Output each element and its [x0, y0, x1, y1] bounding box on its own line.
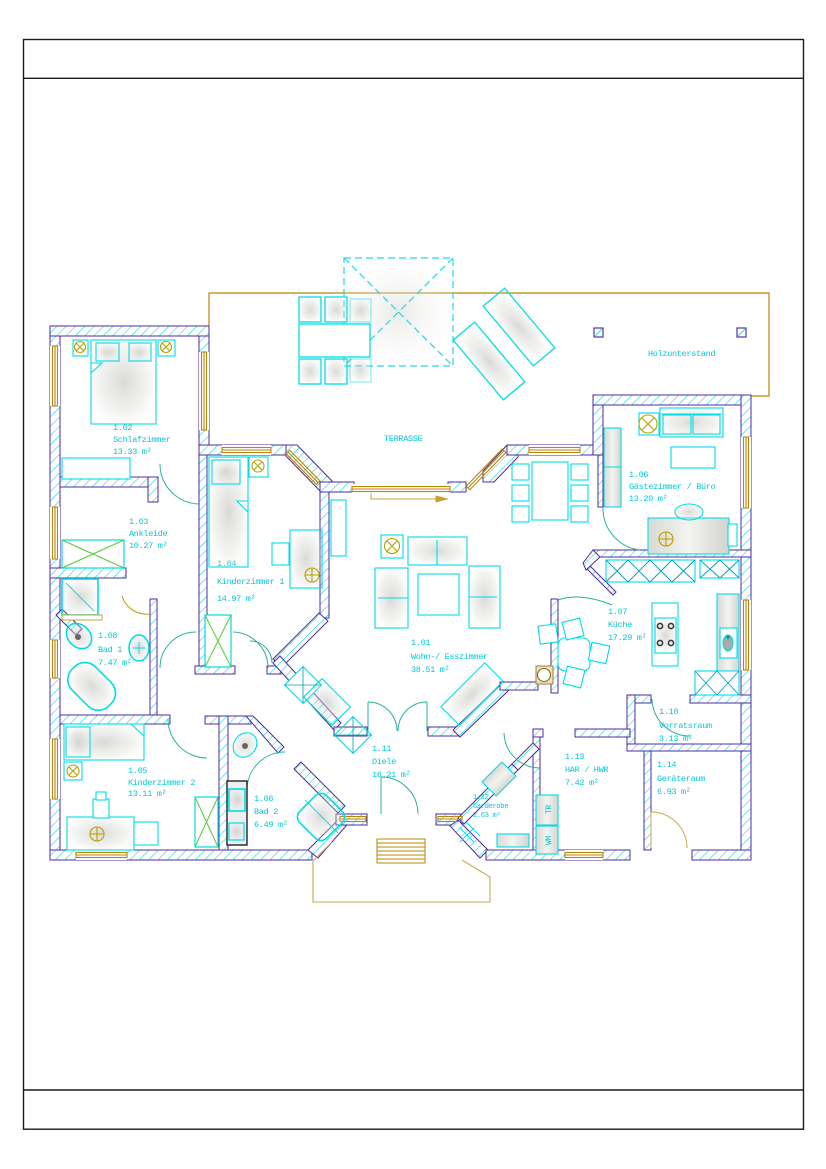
svg-text:Küche: Küche [608, 620, 632, 630]
svg-text:WM: WM [545, 835, 554, 845]
svg-text:7.42 m²: 7.42 m² [565, 778, 599, 788]
svg-text:Garderobe: Garderobe [473, 803, 508, 811]
svg-text:1.14: 1.14 [657, 760, 676, 770]
svg-text:Gästezimmer / Büro: Gästezimmer / Büro [629, 482, 716, 492]
svg-text:Bad 1: Bad 1 [98, 645, 122, 655]
svg-text:Kinderzimmer 2: Kinderzimmer 2 [128, 778, 195, 788]
svg-text:6.49 m²: 6.49 m² [254, 820, 288, 830]
svg-text:2.63 m²: 2.63 m² [473, 812, 500, 820]
svg-text:Holzunterstand: Holzunterstand [648, 349, 715, 359]
svg-text:TERRASSE: TERRASSE [384, 434, 423, 444]
svg-text:3.13 m²: 3.13 m² [659, 734, 693, 744]
svg-text:Vorratsraum: Vorratsraum [659, 721, 712, 731]
svg-text:Schlafzimmer: Schlafzimmer [113, 435, 171, 445]
svg-text:1.11: 1.11 [372, 744, 391, 754]
svg-text:10.27 m²: 10.27 m² [129, 541, 167, 551]
svg-text:TR: TR [545, 804, 554, 814]
svg-text:Geräteraum: Geräteraum [657, 774, 705, 784]
svg-text:1.08: 1.08 [98, 631, 117, 641]
svg-text:HAR / HWR: HAR / HWR [565, 765, 608, 775]
svg-text:1.12: 1.12 [473, 794, 489, 802]
svg-text:13.33 m²: 13.33 m² [113, 447, 151, 457]
svg-text:6.93 m²: 6.93 m² [657, 787, 691, 797]
svg-text:Bad 2: Bad 2 [254, 807, 278, 817]
svg-text:Diele: Diele [372, 757, 396, 767]
svg-text:1.06: 1.06 [254, 794, 273, 804]
svg-text:1.07: 1.07 [608, 607, 627, 617]
svg-text:1.06: 1.06 [629, 470, 648, 480]
svg-text:1.05: 1.05 [128, 766, 147, 776]
svg-text:1.01: 1.01 [411, 638, 430, 648]
svg-text:13.11 m²: 13.11 m² [128, 789, 166, 799]
svg-text:1.10: 1.10 [659, 707, 678, 717]
svg-text:7.47 m²: 7.47 m² [98, 658, 132, 668]
svg-text:Wohn-/ Esszimmer: Wohn-/ Esszimmer [411, 652, 488, 662]
svg-text:13.20 m²: 13.20 m² [629, 494, 667, 504]
svg-text:38.51 m²: 38.51 m² [411, 665, 449, 675]
svg-text:14.97 m²: 14.97 m² [217, 594, 255, 604]
svg-text:16.21 m²: 16.21 m² [372, 770, 410, 780]
svg-text:Kinderzimmer 1: Kinderzimmer 1 [217, 577, 284, 587]
svg-text:17.29 m²: 17.29 m² [608, 633, 646, 643]
svg-text:1.03: 1.03 [129, 517, 148, 527]
svg-text:Ankleide: Ankleide [129, 529, 168, 539]
svg-text:1.13: 1.13 [565, 752, 584, 762]
